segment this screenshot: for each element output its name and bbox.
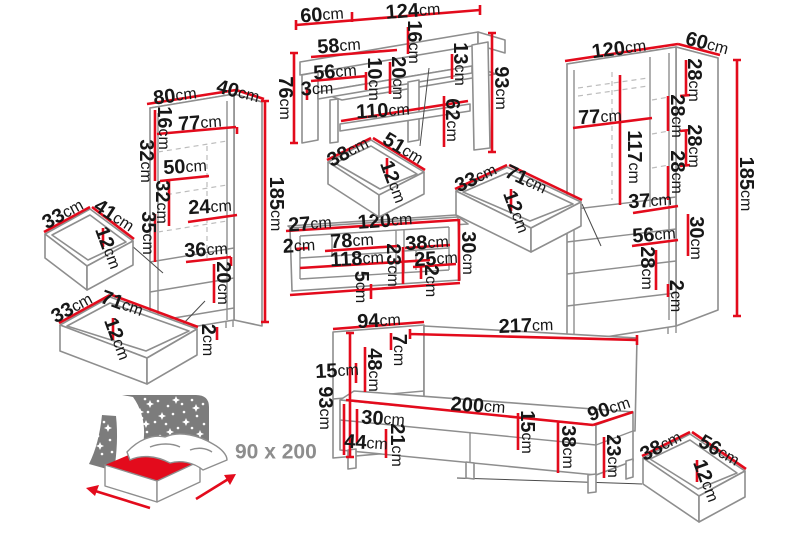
dim-label: 93cm: [490, 66, 512, 110]
diagram-svg: 80cm 40cm 16cm 77cm 32cm 50cm 32cm 24cm …: [0, 0, 800, 533]
bed-leg-d: [626, 459, 633, 479]
dim-label: 62cm: [441, 98, 463, 142]
bed-leg-c: [588, 474, 596, 493]
dim-label: 2cm: [197, 324, 219, 356]
dim-label: 93cm: [314, 386, 336, 430]
icon-arrow-length: [196, 478, 230, 499]
dim-label: 185cm: [735, 157, 757, 212]
dim-label: 13cm: [449, 42, 471, 86]
pointer-line-bed-drawer: [457, 478, 642, 484]
dim-label: 2cm: [665, 280, 687, 312]
left-drawer-top-drawing: 33cm 41cm 12cm: [39, 194, 139, 290]
bed-size-icon: 90 x 200: [86, 395, 317, 508]
desk-right-panel: [472, 42, 490, 150]
bed-leg-b: [466, 462, 474, 479]
dim-label: 48cm: [363, 348, 385, 392]
furniture-dimension-diagram: 80cm 40cm 16cm 77cm 32cm 50cm 32cm 24cm …: [0, 0, 800, 533]
dim-label: 15cm: [516, 410, 538, 454]
right-wardrobe-drawing: 120cm 60cm 28cm 77cm 28cm 28cm 28cm 117c…: [565, 28, 757, 350]
dim-label: 21cm: [386, 423, 408, 467]
dim-label: 117cm: [623, 130, 645, 184]
desk-leg-a: [330, 99, 338, 143]
bed-size-label: 90 x 200: [235, 441, 317, 464]
dim-label: 20cm: [387, 56, 409, 100]
dim-label: 5cm: [350, 271, 372, 303]
dim-label: 30cm: [457, 231, 479, 275]
dim-label: 28cm: [636, 246, 658, 290]
dim-label: 185cm: [265, 177, 287, 232]
wall-shelf-drawing: 27cm 120cm 2cm 78cm 38cm 118cm 25cm 23cm…: [282, 208, 479, 303]
dim-label: 28cm: [666, 150, 688, 194]
dim-label: 60cm: [299, 3, 344, 28]
dim-label: 38cm: [557, 425, 579, 469]
dim-label: 23cm: [602, 434, 624, 478]
dim-label: 76cm: [274, 76, 296, 120]
dim-label: 7cm: [388, 334, 410, 366]
dim-label: 32cm: [135, 139, 157, 183]
dim-label: 23cm: [382, 243, 404, 287]
dim-label: 20cm: [212, 261, 234, 305]
bottom-right-drawer-drawing: 38cm 56cm 12cm: [637, 426, 746, 522]
dim-label: 2cm: [420, 265, 442, 297]
bed-drawing: 94cm 217cm 7cm 48cm 15cm 93cm 200cm 30cm…: [314, 309, 637, 493]
dim-label: 3cm: [300, 77, 333, 100]
dim-label: 30cm: [685, 216, 707, 260]
dim-label: 10cm: [363, 57, 385, 101]
dim-label: 35cm: [137, 211, 159, 255]
